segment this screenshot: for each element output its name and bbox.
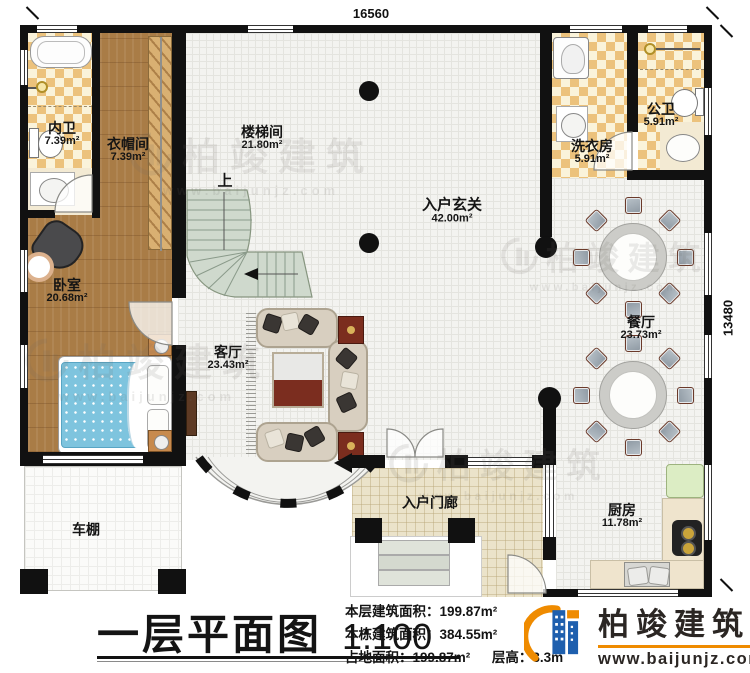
room-label-kitchen: 厨房11.78m² [602, 503, 642, 529]
room-label-porch: 入户门廊 [402, 496, 458, 511]
brand-rule [598, 645, 750, 648]
brand-logo-icon [524, 601, 590, 667]
stat-floor-area: 本层建筑面积：199.87m² [345, 600, 497, 620]
room-label-entry-hall: 入户玄关42.00m² [422, 197, 482, 224]
room-label-stairwell: 楼梯间21.80m² [241, 125, 283, 151]
dimension-right: 13480 [721, 300, 736, 336]
room-label-carport: 车棚 [72, 523, 100, 538]
stat-building-area: 本栋建筑面积：384.55m² [345, 623, 497, 643]
stair-up-label: 上 [217, 170, 232, 191]
brand-logo: 柏竣建筑 www.baijunjz.com [524, 599, 750, 669]
room-label-cloakroom: 衣帽间7.39m² [107, 137, 149, 163]
room-label-public-bath: 公卫5.91m² [644, 102, 679, 128]
room-label-living: 客厅23.43m² [208, 345, 249, 371]
floor-plan-sheet: 内卫7.39m² 衣帽间7.39m² 楼梯间21.80m² 入户玄关42.00m… [0, 0, 750, 673]
room-label-dining: 餐厅23.73m² [621, 315, 662, 341]
brand-url: www.baijunjz.com [598, 650, 750, 669]
dimension-top: 16560 [353, 6, 389, 21]
room-label-laundry: 洗衣房5.91m² [571, 139, 613, 165]
page-title: 一层平面图 [97, 601, 322, 662]
room-label-bedroom: 卧室20.68m² [47, 278, 88, 304]
brand-name: 柏竣建筑 [598, 599, 750, 644]
room-label-master-bath: 内卫7.39m² [45, 121, 80, 147]
